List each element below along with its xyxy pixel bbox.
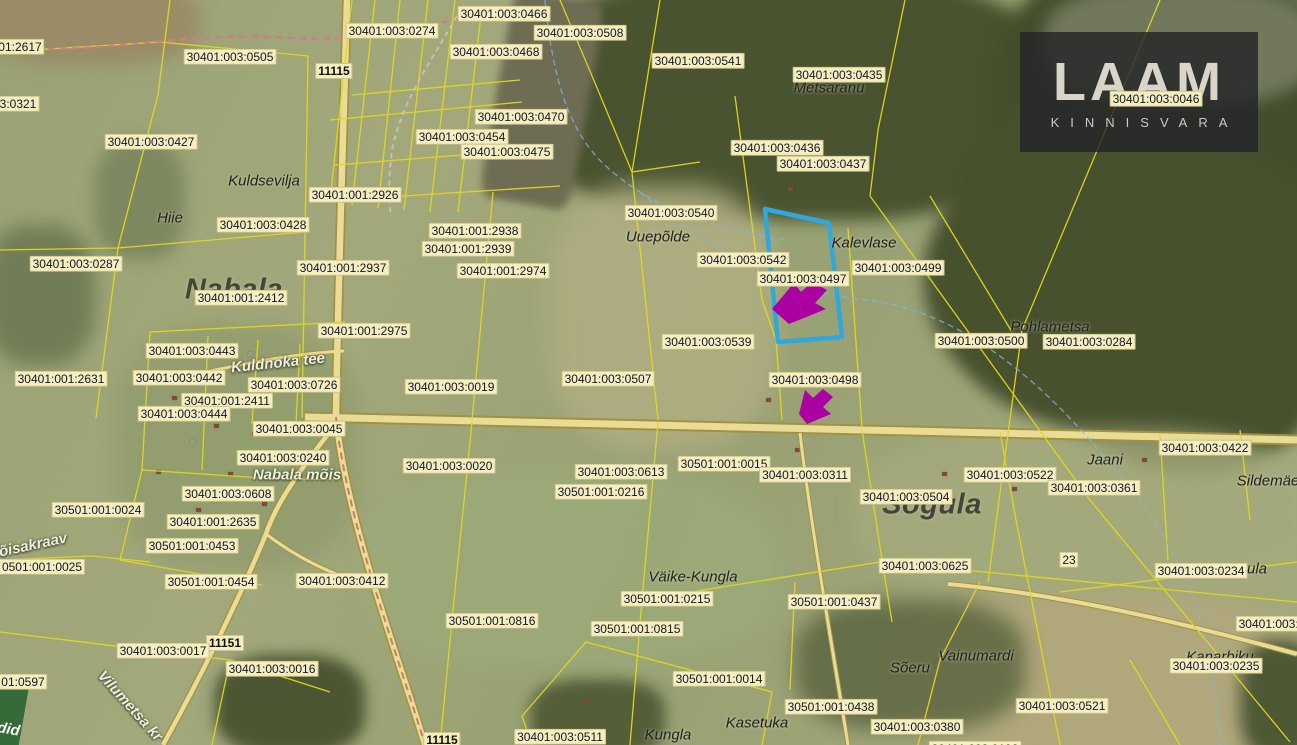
corner-watermark-text: did [0, 719, 21, 740]
selection-arrow-2 [799, 389, 833, 424]
selection-arrow-1 [772, 282, 827, 324]
laam-logo-subtext: KINNISVARA [1040, 115, 1239, 130]
highlighted-parcel-outline[interactable] [765, 209, 842, 342]
map-canvas[interactable]: LAAM KINNISVARA did NabalaSõgulaKuldsevi… [0, 0, 1297, 745]
laam-logo: LAAM KINNISVARA [1020, 32, 1258, 152]
laam-logo-text: LAAM [1053, 55, 1225, 109]
